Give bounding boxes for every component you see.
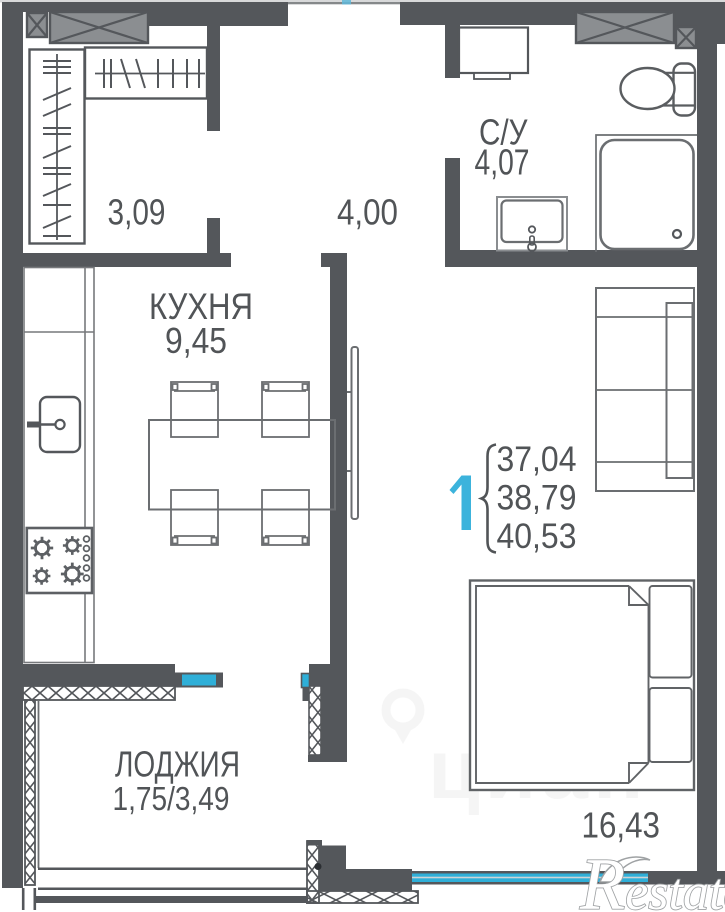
svg-text:ЛОДЖИЯ: ЛОДЖИЯ <box>115 744 240 785</box>
svg-text:40,53: 40,53 <box>497 517 577 556</box>
svg-text:3,09: 3,09 <box>108 192 166 233</box>
svg-text:37,04: 37,04 <box>497 440 577 479</box>
svg-text:4,00: 4,00 <box>337 192 398 233</box>
svg-text:1,75/3,49: 1,75/3,49 <box>113 780 230 817</box>
svg-text:16,43: 16,43 <box>582 805 661 846</box>
svg-text:4,07: 4,07 <box>475 142 530 183</box>
svg-text:38,79: 38,79 <box>497 479 577 518</box>
svg-text:9,45: 9,45 <box>165 320 227 361</box>
